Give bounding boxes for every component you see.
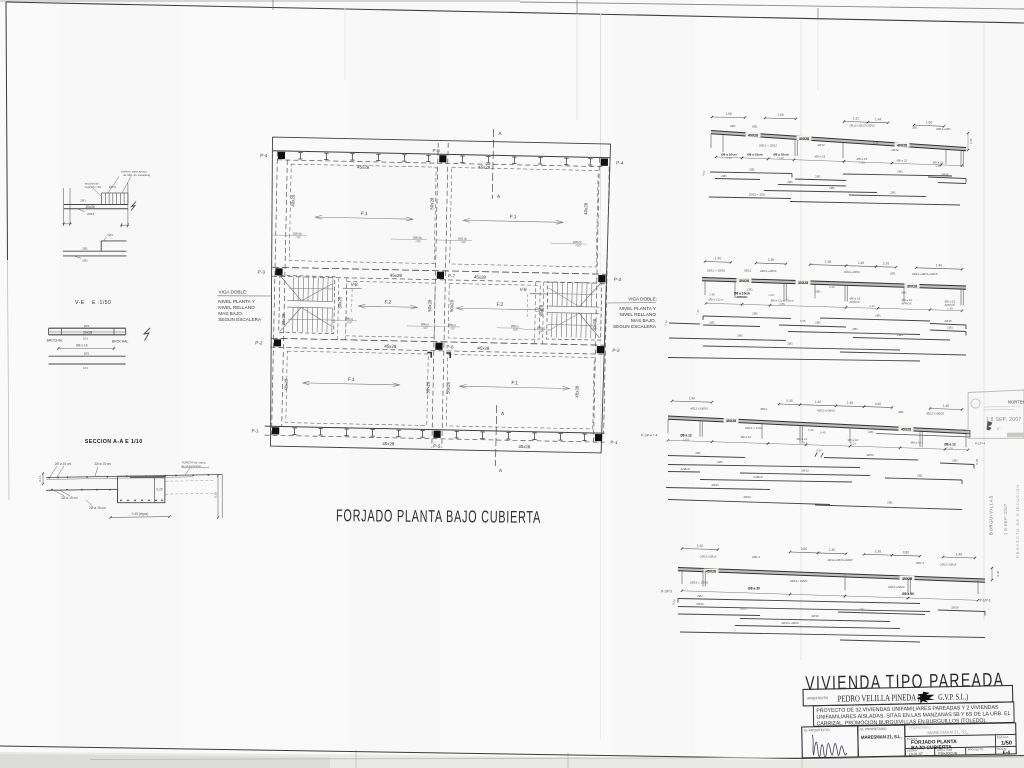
svg-text:P-8: P-8 xyxy=(432,148,440,153)
svg-text:PROYECTO DE EJECUCION: PROYECTO DE EJECUCION xyxy=(1015,484,1020,558)
svg-text:45x28: 45x28 xyxy=(518,444,531,449)
svg-text:2Ø12+2Ø16: 2Ø12+2Ø16 xyxy=(760,269,777,273)
svg-text:2Ø10: 2Ø10 xyxy=(801,469,809,473)
svg-text:2Ø12 + 3 #4: 2Ø12 + 3 #4 xyxy=(745,426,762,430)
svg-text:45x28: 45x28 xyxy=(382,441,395,446)
svg-text:19-01-07: 19-01-07 xyxy=(909,752,923,756)
svg-text:1.45: 1.45 xyxy=(947,307,953,311)
svg-text:SECCION A-A E 1/10: SECCION A-A E 1/10 xyxy=(85,439,143,445)
svg-text:1.31: 1.31 xyxy=(853,117,859,121)
svg-text:2Ø1: 2Ø1 xyxy=(897,333,903,337)
svg-text:2Ø12+2Ø16: 2Ø12+2Ø16 xyxy=(700,555,717,559)
svg-text:1.35: 1.35 xyxy=(825,260,831,264)
svg-text:0.40: 0.40 xyxy=(975,458,979,464)
svg-text:0.40: 0.40 xyxy=(786,399,792,403)
svg-text:20x28: 20x28 xyxy=(83,330,92,334)
svg-text:F.1: F.1 xyxy=(361,211,368,217)
svg-text:P-4: P-4 xyxy=(616,160,624,165)
svg-text:1.50: 1.50 xyxy=(777,113,783,117)
svg-text:de tabl. de escalera): de tabl. de escalera) xyxy=(123,173,150,177)
svg-text:Ø8 a 30: Ø8 a 30 xyxy=(748,587,760,591)
svg-text:2Ø ø 16 cm: 2Ø ø 16 cm xyxy=(89,506,106,510)
svg-text:45X28: 45X28 xyxy=(706,570,716,574)
svg-text:ARQUITECTO: ARQUITECTO xyxy=(807,696,828,700)
svg-text:30X28: 30X28 xyxy=(739,279,749,283)
svg-text:Ø8 a 15: Ø8 a 15 xyxy=(897,159,908,163)
svg-text:45x28: 45x28 xyxy=(474,274,487,279)
svg-text:APROX.: APROX. xyxy=(850,300,861,304)
svg-text:P-5: P-5 xyxy=(433,444,441,449)
svg-text:4Ø12: 4Ø12 xyxy=(760,407,768,411)
svg-text:20x28: 20x28 xyxy=(281,313,286,326)
svg-text:1/50: 1/50 xyxy=(1001,740,1012,746)
svg-text:0.45 (vigas): 0.45 (vigas) xyxy=(132,512,149,516)
svg-text:0.45: 0.45 xyxy=(969,138,973,144)
svg-text:2Ø12+2Ø1: 2Ø12+2Ø1 xyxy=(936,127,951,131)
svg-text:V-E: V-E xyxy=(520,287,528,292)
svg-text:2Ø12: 2Ø12 xyxy=(744,269,752,273)
svg-text:NIVEL PLANTA Y: NIVEL PLANTA Y xyxy=(218,299,256,304)
svg-text:2Ø1?: 2Ø1? xyxy=(740,607,748,611)
svg-text:2Ø16: 2Ø16 xyxy=(696,602,704,606)
svg-text:2Ø1.2: 2Ø1.2 xyxy=(752,555,761,559)
svg-text:1.35: 1.35 xyxy=(859,161,865,165)
svg-text:2Ø16 + 2Ø20: 2Ø16 + 2Ø20 xyxy=(690,581,708,585)
svg-text:1.30: 1.30 xyxy=(875,550,881,554)
svg-text:20x30: 20x30 xyxy=(86,205,95,209)
svg-text:2Ø1: 2Ø1 xyxy=(815,175,821,179)
svg-text:2Ø12+2Ø16+2Ø16: 2Ø12+2Ø16+2Ø16 xyxy=(912,272,938,276)
svg-text:2Ø1: 2Ø1 xyxy=(815,321,821,325)
svg-text:2Ø16: 2Ø16 xyxy=(811,614,819,618)
svg-text:2Ø ø 15 cm: 2Ø ø 15 cm xyxy=(55,462,72,466)
svg-text:45X28: 45X28 xyxy=(902,577,912,581)
svg-text:MAS BAJO,: MAS BAJO, xyxy=(631,318,656,323)
svg-text:MAS BAJO,: MAS BAJO, xyxy=(218,311,243,316)
svg-text:30X28: 30X28 xyxy=(798,281,808,285)
svg-text:2Ø12+2Ø16+2Ø20: 2Ø12+2Ø16+2Ø20 xyxy=(827,558,853,562)
svg-text:1.06: 1.06 xyxy=(926,121,932,125)
svg-text:2Ø1: 2Ø1 xyxy=(107,233,113,237)
svg-text:50x28: 50x28 xyxy=(449,299,454,312)
svg-text:1.35: 1.35 xyxy=(768,258,774,262)
svg-text:2Ø16: 2Ø16 xyxy=(944,319,952,323)
svg-text:VIGA DOBLE:: VIGA DOBLE: xyxy=(628,297,657,302)
svg-text:50x28: 50x28 xyxy=(425,381,430,394)
svg-text:Ø8 a 30: Ø8 a 30 xyxy=(902,592,914,596)
svg-text:MARESMAN 21, S.L.: MARESMAN 21, S.L. xyxy=(861,734,902,740)
svg-text:24Ø10: 24Ø10 xyxy=(753,475,762,479)
svg-text:BROCHAL: BROCHAL xyxy=(47,339,64,343)
svg-text:2Ø1: 2Ø1 xyxy=(859,608,865,612)
svg-text:2.10: 2.10 xyxy=(883,262,889,266)
svg-text:0.80: 0.80 xyxy=(903,551,909,555)
svg-text:2Ø1: 2Ø1 xyxy=(917,474,923,478)
svg-text:0.40: 0.40 xyxy=(829,285,835,289)
svg-text:2Ø1: 2Ø1 xyxy=(901,291,907,295)
svg-text:45x28: 45x28 xyxy=(574,385,579,398)
svg-text:50x28: 50x28 xyxy=(427,299,432,312)
svg-text:1.30: 1.30 xyxy=(847,401,853,405)
svg-text:2Ø16: 2Ø16 xyxy=(866,453,874,457)
svg-text:0.40: 0.40 xyxy=(799,441,805,445)
svg-text:ESCALA: ESCALA xyxy=(997,735,1009,739)
svg-text:NIVEL RELLANO: NIVEL RELLANO xyxy=(218,305,255,310)
svg-text:0.20: 0.20 xyxy=(157,488,163,492)
svg-text:2Ø16+ 2Ø20: 2Ø16+ 2Ø20 xyxy=(781,621,799,625)
svg-text:2Ø1: 2Ø1 xyxy=(887,501,893,505)
svg-text:2Ø1.2: 2Ø1.2 xyxy=(916,561,925,565)
svg-text:2Ø1: 2Ø1 xyxy=(82,258,88,262)
svg-text:4Ø12+10Ø10: 4Ø12+10Ø10 xyxy=(926,412,944,416)
svg-text:2Ø12: 2Ø12 xyxy=(87,212,95,216)
svg-text:2Ø1: 2Ø1 xyxy=(787,342,793,346)
svg-text:E-4: E-4 xyxy=(1003,750,1011,755)
svg-text:2Ø16+ 2Ø20: 2Ø16+ 2Ø20 xyxy=(790,579,808,583)
svg-text:1Ø1: 1Ø1 xyxy=(83,337,89,341)
svg-text:4Ø1: 4Ø1 xyxy=(695,451,701,455)
svg-text:0.14: 0.14 xyxy=(38,475,42,481)
svg-text:BURGUIVILLAS: BURGUIVILLAS xyxy=(989,495,994,535)
svg-text:0.80: 0.80 xyxy=(801,547,807,551)
svg-text:2Ø16: 2Ø16 xyxy=(711,483,719,487)
svg-text:4Ø12+10Ø10: 4Ø12+10Ø10 xyxy=(690,407,708,411)
svg-text:1.18: 1.18 xyxy=(768,293,774,297)
svg-text:F.1: F.1 xyxy=(511,380,518,386)
svg-text:45x28: 45x28 xyxy=(384,344,397,349)
svg-text:2Ø1: 2Ø1 xyxy=(84,352,90,356)
svg-text:F.2: F.2 xyxy=(496,302,503,308)
svg-text:V-E: V-E xyxy=(75,300,85,306)
svg-text:Ø8 a 10: Ø8 a 10 xyxy=(741,435,752,439)
svg-text:1 8 SEP. 2007: 1 8 SEP. 2007 xyxy=(1003,503,1008,535)
svg-text:2Ø12+2Ø12+2Ø12: 2Ø12+2Ø12+2Ø12 xyxy=(849,124,875,128)
svg-text:1Ø1: 1Ø1 xyxy=(868,430,874,434)
svg-text:2Ø12 + 2Ø1: 2Ø12 + 2Ø1 xyxy=(749,193,766,197)
svg-text:P-1/P-4: P-1/P-4 xyxy=(975,442,986,446)
svg-text:0.40: 0.40 xyxy=(808,428,814,432)
svg-text:12Ø10: 12Ø10 xyxy=(680,467,689,471)
svg-text:30X28: 30X28 xyxy=(907,285,917,289)
svg-text:2Ø1: 2Ø1 xyxy=(890,272,896,276)
svg-text:P-6: P-6 xyxy=(446,344,454,349)
svg-text:2Ø1: 2Ø1 xyxy=(815,290,821,294)
svg-text:PROYECTO: PROYECTO xyxy=(968,747,985,751)
svg-text:40x28: 40x28 xyxy=(583,202,588,215)
svg-text:40X28: 40X28 xyxy=(897,143,907,147)
svg-text:P-1/P-3: P-1/P-3 xyxy=(980,599,991,603)
svg-text:P-1/P-4 = 4: P-1/P-4 = 4 xyxy=(641,434,657,438)
svg-text:SEGUN ESCALERA: SEGUN ESCALERA xyxy=(218,317,262,322)
svg-text:2Ø1: 2Ø1 xyxy=(749,168,755,172)
svg-text:2Ø1: 2Ø1 xyxy=(717,460,723,464)
svg-text:4.40: 4.40 xyxy=(875,402,881,406)
svg-text:2Ø ø 15 cm: 2Ø ø 15 cm xyxy=(61,496,78,500)
svg-text:P-3: P-3 xyxy=(258,269,266,274)
svg-text:P-7: P-7 xyxy=(448,273,456,278)
svg-text:VIGA DOBLE:: VIGA DOBLE: xyxy=(219,289,248,294)
svg-text:0.40: 0.40 xyxy=(873,141,879,145)
svg-text:45X28: 45X28 xyxy=(726,419,736,423)
svg-text:2Ø1: 2Ø1 xyxy=(697,594,703,598)
svg-text:40x28: 40x28 xyxy=(290,194,295,207)
svg-text:50x28: 50x28 xyxy=(429,197,434,210)
svg-text:2Ø12+2Ø16: 2Ø12+2Ø16 xyxy=(940,563,957,567)
svg-text:0.40: 0.40 xyxy=(820,431,826,435)
svg-text:1.30: 1.30 xyxy=(829,548,835,552)
svg-text:2Ø1: 2Ø1 xyxy=(852,327,858,331)
svg-text:P-2: P-2 xyxy=(612,348,620,353)
svg-text:1.44: 1.44 xyxy=(875,117,881,121)
svg-text:2Ø1: 2Ø1 xyxy=(737,334,743,338)
svg-text:40x28: 40x28 xyxy=(283,378,288,391)
svg-text:1.93: 1.93 xyxy=(726,156,732,160)
svg-text:2Ø1: 2Ø1 xyxy=(80,199,86,203)
svg-text:1.98: 1.98 xyxy=(709,293,715,297)
svg-text:1.40: 1.40 xyxy=(715,257,721,261)
svg-text:2Ø1: 2Ø1 xyxy=(897,170,903,174)
svg-text:4Ø12+10Ø10: 4Ø12+10Ø10 xyxy=(817,409,835,413)
svg-text:NIVEL RELLANO: NIVEL RELLANO xyxy=(619,312,656,317)
svg-text:Ø8 a 10: Ø8 a 10 xyxy=(911,441,922,445)
svg-text:0.30: 0.30 xyxy=(996,570,1000,576)
svg-text:2Ø1: 2Ø1 xyxy=(752,125,758,129)
svg-text:1.06: 1.06 xyxy=(725,112,731,116)
svg-text:PBAJOCUB: PBAJOCUB xyxy=(938,751,958,755)
svg-text:1.40: 1.40 xyxy=(858,261,864,265)
svg-text:2Ø12: 2Ø12 xyxy=(891,148,899,152)
svg-text:1.40: 1.40 xyxy=(936,263,942,267)
svg-text:2Ø16+2Ø20: 2Ø16+2Ø20 xyxy=(888,585,905,589)
svg-text:VIVIENDA TIPO PAREADA: VIVIENDA TIPO PAREADA xyxy=(805,669,1004,695)
svg-text:45x28: 45x28 xyxy=(478,165,491,170)
svg-text:V°: V° xyxy=(997,427,1001,431)
svg-text:1.00: 1.00 xyxy=(947,447,953,451)
svg-text:Ø8 a 12cm: Ø8 a 12cm xyxy=(709,298,724,302)
svg-text:E :1/50: E :1/50 xyxy=(92,300,111,306)
svg-text:F.2: F.2 xyxy=(384,300,391,306)
svg-text:Ø8 a 15cm: Ø8 a 15cm xyxy=(747,153,763,157)
svg-text:2Ø1: 2Ø1 xyxy=(84,324,90,328)
svg-text:G.V.P. S.L.): G.V.P. S.L.) xyxy=(938,691,968,702)
svg-text:P-1: P-1 xyxy=(610,440,618,445)
svg-text:2Ø1: 2Ø1 xyxy=(829,186,835,190)
svg-text:APROX.: APROX. xyxy=(902,302,913,306)
svg-text:P-4: P-4 xyxy=(260,153,268,158)
svg-text:2Ø1: 2Ø1 xyxy=(82,247,88,251)
svg-text:40X28: 40X28 xyxy=(748,134,758,138)
svg-text:Ø8 a 15: Ø8 a 15 xyxy=(76,343,88,347)
svg-text:Ø8 a 15: Ø8 a 15 xyxy=(815,155,826,159)
svg-text:1.40: 1.40 xyxy=(943,404,949,408)
svg-text:2Ø1: 2Ø1 xyxy=(912,126,918,130)
svg-text:45x28: 45x28 xyxy=(477,346,490,351)
svg-text:4Ø1: 4Ø1 xyxy=(898,410,904,414)
svg-text:30X28: 30X28 xyxy=(799,137,809,141)
svg-text:0.28: 0.28 xyxy=(214,492,218,498)
svg-text:P-1/P-3: P-1/P-3 xyxy=(661,590,672,594)
svg-text:2Ø1: 2Ø1 xyxy=(947,326,953,330)
svg-text:APROX.: APROX. xyxy=(736,295,748,299)
svg-text:45X28: 45X28 xyxy=(901,428,911,432)
svg-text:NORTEC: NORTEC xyxy=(1008,400,1024,405)
svg-text:45x28: 45x28 xyxy=(390,273,403,278)
svg-text:0.90: 0.90 xyxy=(816,449,822,453)
svg-text:1.10: 1.10 xyxy=(869,304,875,308)
svg-text:F.1: F.1 xyxy=(348,377,355,383)
svg-text:PEDRO VELILLA PINEDA (: PEDRO VELILLA PINEDA ( xyxy=(838,692,920,704)
svg-text:2Ø1: 2Ø1 xyxy=(752,312,758,316)
svg-text:2Ø16: 2Ø16 xyxy=(743,495,751,499)
svg-text:EL ARQUITECTO: EL ARQUITECTO xyxy=(804,728,830,732)
svg-text:P-2: P-2 xyxy=(255,340,263,345)
svg-text:2Ø ø 15 cm: 2Ø ø 15 cm xyxy=(94,462,111,466)
svg-text:2Ø12 + 2Ø12: 2Ø12 + 2Ø12 xyxy=(759,144,777,148)
svg-text:de compresion: de compresion xyxy=(181,464,201,468)
svg-text:2Ø12: 2Ø12 xyxy=(817,143,825,147)
svg-text:V-E: V-E xyxy=(351,282,359,287)
svg-text:P-1: P-1 xyxy=(251,428,259,433)
svg-text:2Ø1: 2Ø1 xyxy=(890,191,896,195)
svg-text:2Ø16: 2Ø16 xyxy=(941,173,949,177)
svg-text:BROCHAL: BROCHAL xyxy=(112,340,129,344)
svg-text:NIVEL PLANTA Y: NIVEL PLANTA Y xyxy=(619,306,657,311)
svg-text:2Ø1: 2Ø1 xyxy=(730,124,736,128)
svg-text:2Ø16: 2Ø16 xyxy=(951,606,959,610)
svg-text:SEGUN ESCALERA: SEGUN ESCALERA xyxy=(613,324,657,329)
svg-text:EL PROPIETARIO: EL PROPIETARIO xyxy=(860,727,887,732)
svg-text:2Ø1: 2Ø1 xyxy=(787,180,793,184)
svg-text:1.40: 1.40 xyxy=(956,552,962,556)
svg-text:FORJADO PLANTA BAJO CUBIERTA: FORJADO PLANTA BAJO CUBIERTA xyxy=(336,506,541,527)
svg-text:1Ø1: 1Ø1 xyxy=(83,366,89,370)
svg-text:1.40: 1.40 xyxy=(689,396,695,400)
svg-text:2Ø1: 2Ø1 xyxy=(721,174,727,178)
svg-text:1.40: 1.40 xyxy=(697,544,703,548)
svg-text:2Ø12 + 2Ø16: 2Ø12 + 2Ø16 xyxy=(707,269,725,273)
svg-text:MARESMAN 21, S.L.: MARESMAN 21, S.L. xyxy=(927,729,969,735)
svg-text:2Ø1: 2Ø1 xyxy=(709,321,715,325)
svg-text:2Ø1: 2Ø1 xyxy=(875,314,881,318)
svg-text:0.55: 0.55 xyxy=(800,319,806,323)
svg-text:50x28: 50x28 xyxy=(445,381,450,394)
svg-text:2Ø1: 2Ø1 xyxy=(952,459,958,463)
svg-text:1.40: 1.40 xyxy=(815,400,821,404)
svg-text:1 8 SEP. 2007: 1 8 SEP. 2007 xyxy=(986,417,1022,423)
svg-text:2Ø12+2Ø16: 2Ø12+2Ø16 xyxy=(844,270,861,274)
svg-text:P-3: P-3 xyxy=(614,277,622,282)
svg-text:F.1: F.1 xyxy=(510,214,517,220)
